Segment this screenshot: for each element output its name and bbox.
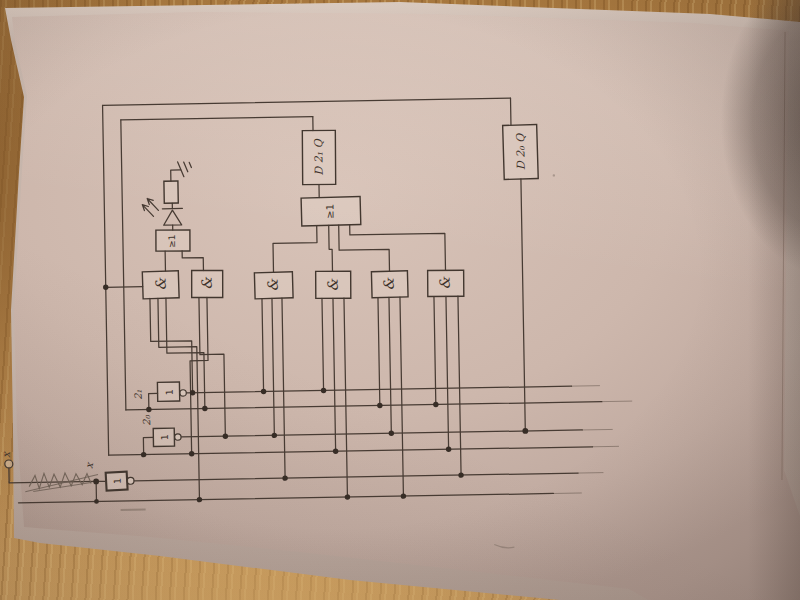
photo-of-hand-drawn-schematic: D 2₁ Q D 2₀ Q ≥1 ≥1	[0, 0, 800, 600]
photo-vignette	[0, 0, 800, 600]
